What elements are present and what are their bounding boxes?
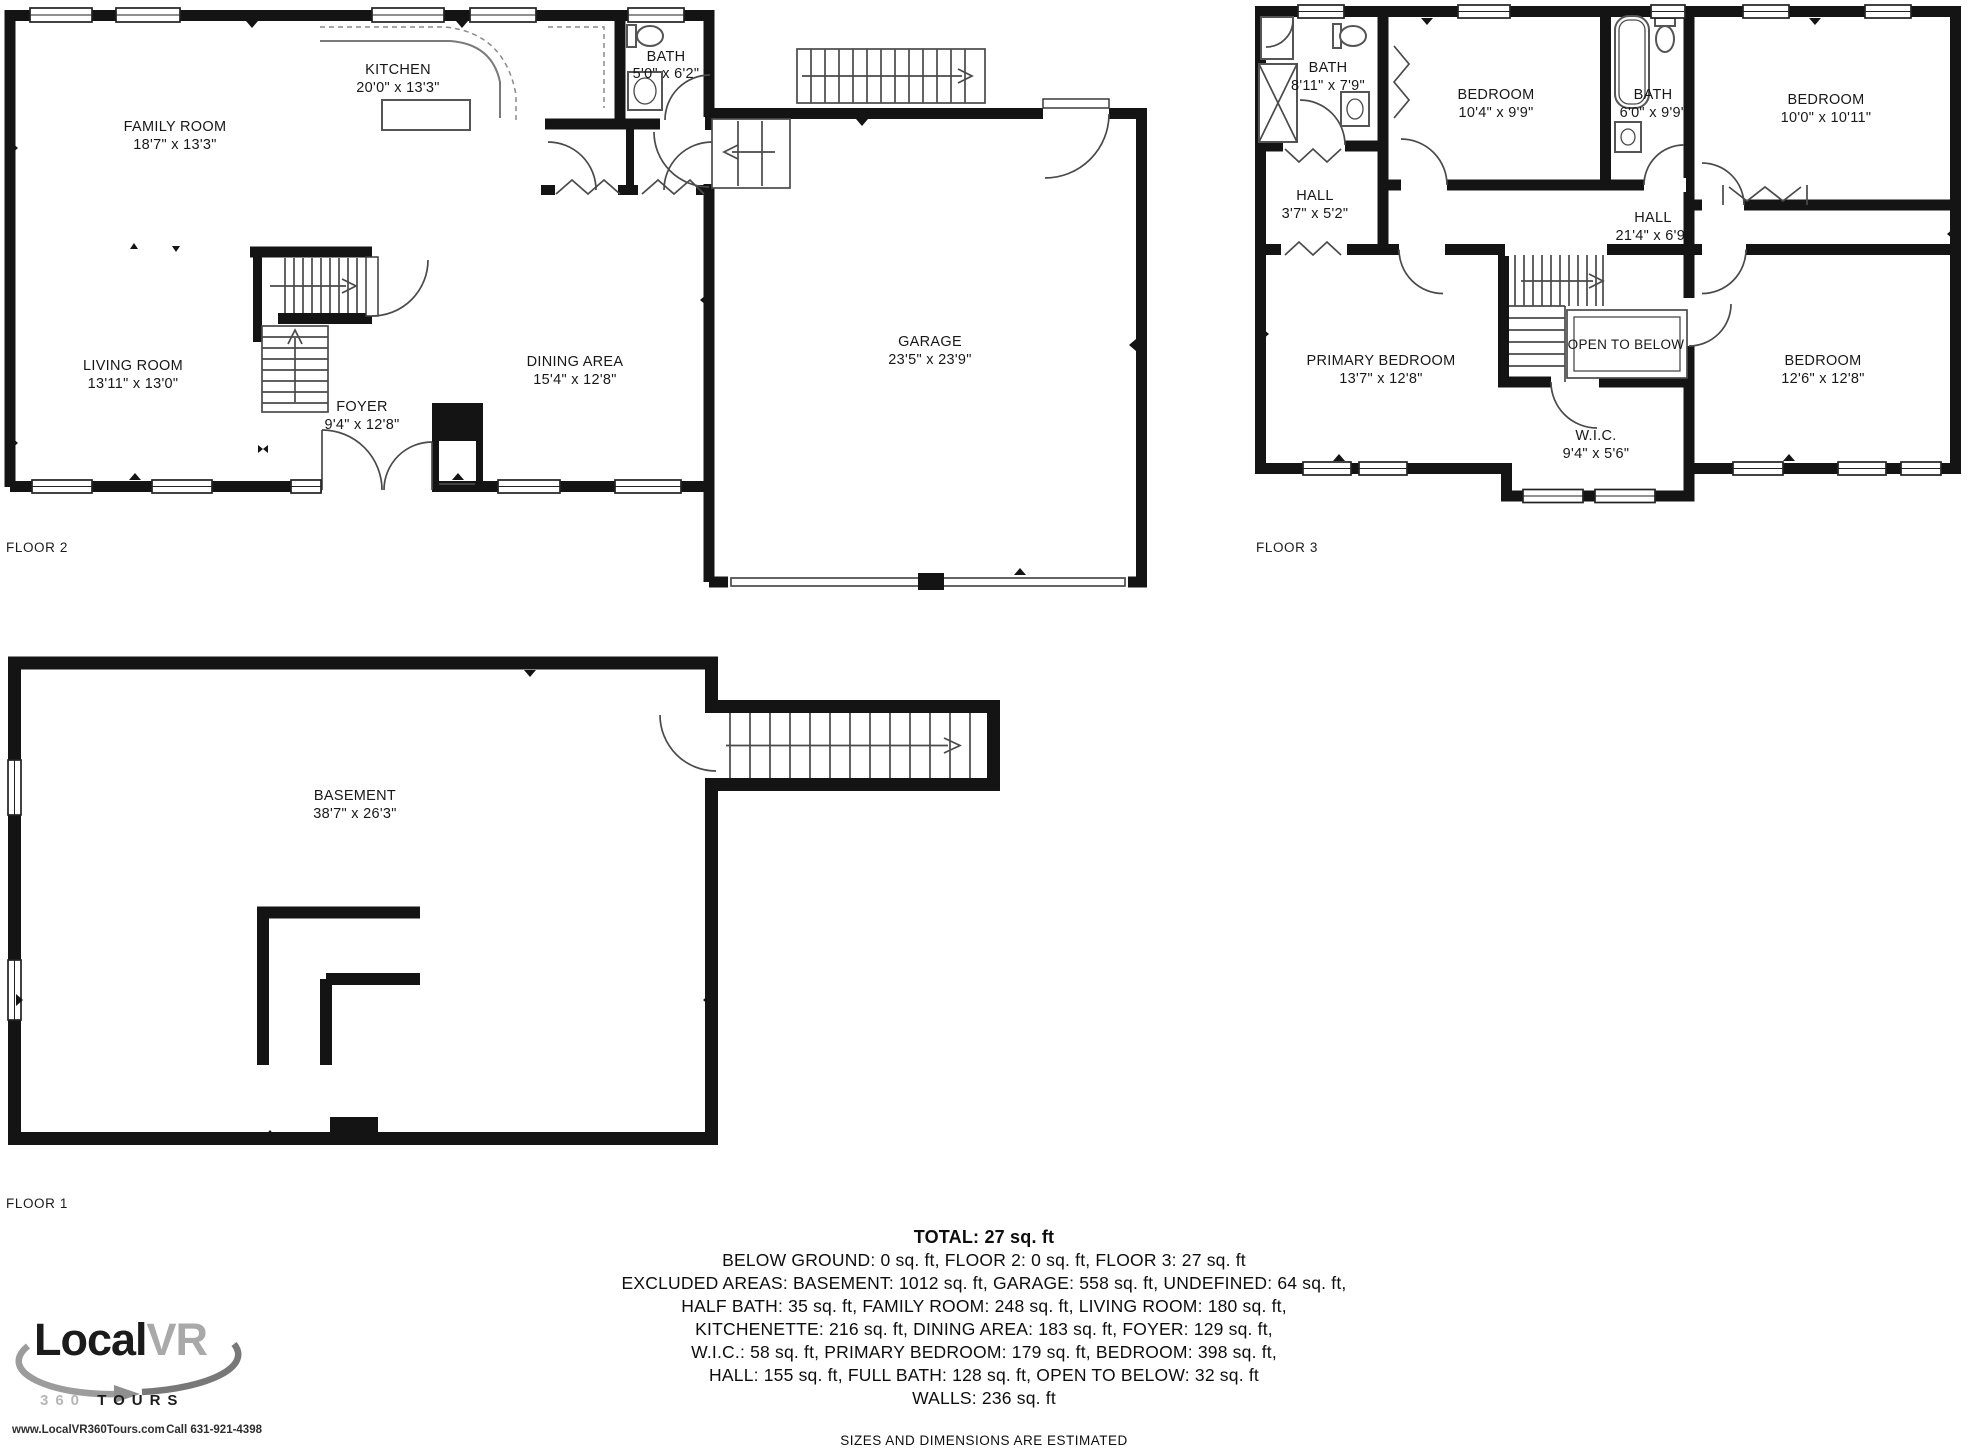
- floor2-stairs: [262, 257, 428, 412]
- door-arc: [1399, 250, 1443, 294]
- door-arc: [548, 142, 596, 190]
- logo-tours-text: TOURS: [97, 1392, 184, 1409]
- room-label-wic: W.I.C. 9'4" x 5'6": [1563, 428, 1630, 462]
- floor1-room-labels: BASEMENT 38'7" x 26'3": [313, 788, 396, 822]
- area-summary: TOTAL: 27 sq. ft BELOW GROUND: 0 sq. ft,…: [0, 1226, 1968, 1448]
- svg-text:6'0" x 9'9": 6'0" x 9'9": [1620, 105, 1687, 121]
- room-label-kitchen: KITCHEN 20'0" x 13'3": [356, 62, 439, 96]
- svg-text:BEDROOM: BEDROOM: [1787, 92, 1864, 108]
- svg-text:BATH: BATH: [1309, 60, 1348, 76]
- toilet-icon: [1656, 26, 1674, 52]
- logo-website: www.LocalVR360Tours.com: [12, 1424, 165, 1436]
- bifold-door-icon: [642, 180, 704, 194]
- svg-text:13'11" x 13'0": 13'11" x 13'0": [88, 376, 179, 392]
- door-leaf: [1043, 99, 1109, 108]
- room-label-hall: HALL 21'4" x 6'9": [1615, 210, 1690, 244]
- room-label-hall-small: HALL 3'7" x 5'2": [1282, 188, 1349, 222]
- floor1-walls: [15, 663, 1001, 1139]
- summary-disclaimer: SIZES AND DIMENSIONS ARE ESTIMATED: [0, 1429, 1968, 1448]
- floor1-plan: BASEMENT 38'7" x 26'3": [0, 645, 1250, 1205]
- svg-text:BASEMENT: BASEMENT: [314, 788, 396, 804]
- svg-text:5'0" x 6'2": 5'0" x 6'2": [633, 66, 700, 82]
- svg-text:DINING AREA: DINING AREA: [527, 354, 624, 370]
- bifold-door-icon: [1394, 46, 1409, 118]
- floor3-stairwell: [1509, 255, 1687, 382]
- svg-text:PRIMARY BEDROOM: PRIMARY BEDROOM: [1307, 353, 1456, 369]
- svg-text:HALL: HALL: [1634, 210, 1671, 226]
- counter-dashed-line: [548, 27, 604, 108]
- toilet-icon: [1655, 18, 1675, 26]
- door-arc: [1045, 114, 1109, 178]
- summary-line: KITCHENETTE: 216 sq. ft, DINING AREA: 18…: [0, 1318, 1968, 1341]
- logo-phone: Call 631-921-4398: [166, 1424, 262, 1436]
- sink-icon: [1341, 92, 1369, 126]
- room-label-bedroom-lower: BEDROOM 12'6" x 12'8": [1781, 353, 1864, 387]
- summary-line: BELOW GROUND: 0 sq. ft, FLOOR 2: 0 sq. f…: [0, 1249, 1968, 1272]
- logo-local-text: Local: [34, 1314, 147, 1365]
- logo-vr-text: VR: [147, 1314, 208, 1365]
- sink-icon: [1615, 122, 1641, 152]
- room-label-family-room: FAMILY ROOM 18'7" x 13'3": [124, 119, 227, 153]
- door-arc: [1689, 304, 1731, 346]
- logo-wordmark: LocalVR: [34, 1316, 280, 1363]
- floor3-label: FLOOR 3: [1256, 540, 1318, 555]
- summary-line: EXCLUDED AREAS: BASEMENT: 1012 sq. ft, G…: [0, 1272, 1968, 1295]
- logo-contact-row: www.LocalVR360Tours.com Call 631-921-439…: [12, 1424, 262, 1436]
- svg-text:13'7" x 12'8": 13'7" x 12'8": [1339, 371, 1422, 387]
- toilet-icon: [637, 26, 663, 46]
- room-label-bedroom-right: BEDROOM 10'0" x 10'11": [1781, 92, 1872, 126]
- summary-line: HALF BATH: 35 sq. ft, FAMILY ROOM: 248 s…: [0, 1295, 1968, 1318]
- svg-text:BATH: BATH: [647, 49, 686, 65]
- svg-text:18'7" x 13'3": 18'7" x 13'3": [133, 137, 216, 153]
- door-arc: [654, 132, 709, 187]
- svg-text:BATH: BATH: [1634, 87, 1673, 103]
- svg-text:8'11" x 7'9": 8'11" x 7'9": [1291, 78, 1365, 94]
- logo-360-text: 360: [40, 1392, 86, 1409]
- kitchen-island: [382, 100, 470, 130]
- summary-line: HALL: 155 sq. ft, FULL BATH: 128 sq. ft,…: [0, 1364, 1968, 1387]
- svg-text:10'4" x 9'9": 10'4" x 9'9": [1458, 105, 1533, 121]
- svg-text:21'4" x 6'9": 21'4" x 6'9": [1615, 228, 1690, 244]
- floor1-label: FLOOR 1: [6, 1196, 68, 1211]
- room-label-garage: GARAGE 23'5" x 23'9": [888, 334, 971, 368]
- svg-text:BEDROOM: BEDROOM: [1784, 353, 1861, 369]
- room-label-primary-bedroom: PRIMARY BEDROOM 13'7" x 12'8": [1307, 353, 1456, 387]
- door-arc: [1702, 250, 1746, 294]
- door-arc: [1300, 100, 1345, 145]
- svg-text:KITCHEN: KITCHEN: [365, 62, 431, 78]
- svg-text:OPEN TO BELOW: OPEN TO BELOW: [1568, 337, 1685, 352]
- room-label-open-to-below: OPEN TO BELOW: [1568, 337, 1685, 352]
- floor2-plan: FAMILY ROOM 18'7" x 13'3" KITCHEN 20'0" …: [0, 0, 1160, 600]
- toilet-icon: [1340, 26, 1366, 46]
- svg-text:HALL: HALL: [1296, 188, 1333, 204]
- svg-text:15'4" x 12'8": 15'4" x 12'8": [533, 372, 616, 388]
- svg-text:3'7" x 5'2": 3'7" x 5'2": [1282, 206, 1349, 222]
- summary-line: W.I.C.: 58 sq. ft, PRIMARY BEDROOM: 179 …: [0, 1341, 1968, 1364]
- floor2-exterior-stoop-stairs: [797, 49, 985, 103]
- room-label-living-room: LIVING ROOM 13'11" x 13'0": [83, 358, 183, 392]
- room-label-foyer: FOYER 9'4" x 12'8": [324, 399, 399, 433]
- svg-text:10'0" x 10'11": 10'0" x 10'11": [1781, 110, 1872, 126]
- svg-text:BEDROOM: BEDROOM: [1457, 87, 1534, 103]
- summary-line: WALLS: 236 sq. ft: [0, 1387, 1968, 1410]
- svg-text:38'7" x 26'3": 38'7" x 26'3": [313, 806, 396, 822]
- floor2-room-labels: FAMILY ROOM 18'7" x 13'3" KITCHEN 20'0" …: [83, 49, 972, 433]
- floorplan-page: FAMILY ROOM 18'7" x 13'3" KITCHEN 20'0" …: [0, 0, 1968, 1448]
- svg-text:9'4" x 12'8": 9'4" x 12'8": [324, 417, 399, 433]
- linen-closet: [1261, 17, 1293, 59]
- toilet-icon: [627, 25, 636, 47]
- logo-tagline: 360 TOURS: [40, 1392, 184, 1409]
- svg-text:9'4" x 5'6": 9'4" x 5'6": [1563, 446, 1630, 462]
- door-leaf: [366, 257, 378, 316]
- room-label-dining-area: DINING AREA 15'4" x 12'8": [527, 354, 624, 388]
- door-arc: [372, 260, 428, 316]
- floor2-kitchen-fixtures: [320, 27, 604, 130]
- floor3-plan: BATH 8'11" x 7'9" BEDROOM 10'4" x 9'9" B…: [1253, 4, 1963, 549]
- svg-text:FOYER: FOYER: [336, 399, 387, 415]
- svg-text:12'6" x 12'8": 12'6" x 12'8": [1781, 371, 1864, 387]
- svg-text:LIVING ROOM: LIVING ROOM: [83, 358, 183, 374]
- room-label-basement: BASEMENT 38'7" x 26'3": [313, 788, 396, 822]
- svg-text:W.I.C.: W.I.C.: [1575, 428, 1616, 444]
- svg-text:GARAGE: GARAGE: [898, 334, 962, 350]
- summary-total: TOTAL: 27 sq. ft: [0, 1226, 1968, 1249]
- room-label-bedroom-top: BEDROOM 10'4" x 9'9": [1457, 87, 1534, 121]
- floor2-label: FLOOR 2: [6, 540, 68, 555]
- svg-text:20'0" x 13'3": 20'0" x 13'3": [356, 80, 439, 96]
- room-label-bath: BATH 5'0" x 6'2": [633, 49, 700, 82]
- room-label-bath-upper-left: BATH 8'11" x 7'9": [1291, 60, 1365, 94]
- floor3-room-labels: BATH 8'11" x 7'9" BEDROOM 10'4" x 9'9" B…: [1282, 60, 1872, 462]
- svg-text:23'5" x 23'9": 23'5" x 23'9": [888, 352, 971, 368]
- bifold-door-icon: [556, 180, 620, 194]
- floor1-ticks: [16, 670, 710, 1137]
- svg-text:FAMILY ROOM: FAMILY ROOM: [124, 119, 227, 135]
